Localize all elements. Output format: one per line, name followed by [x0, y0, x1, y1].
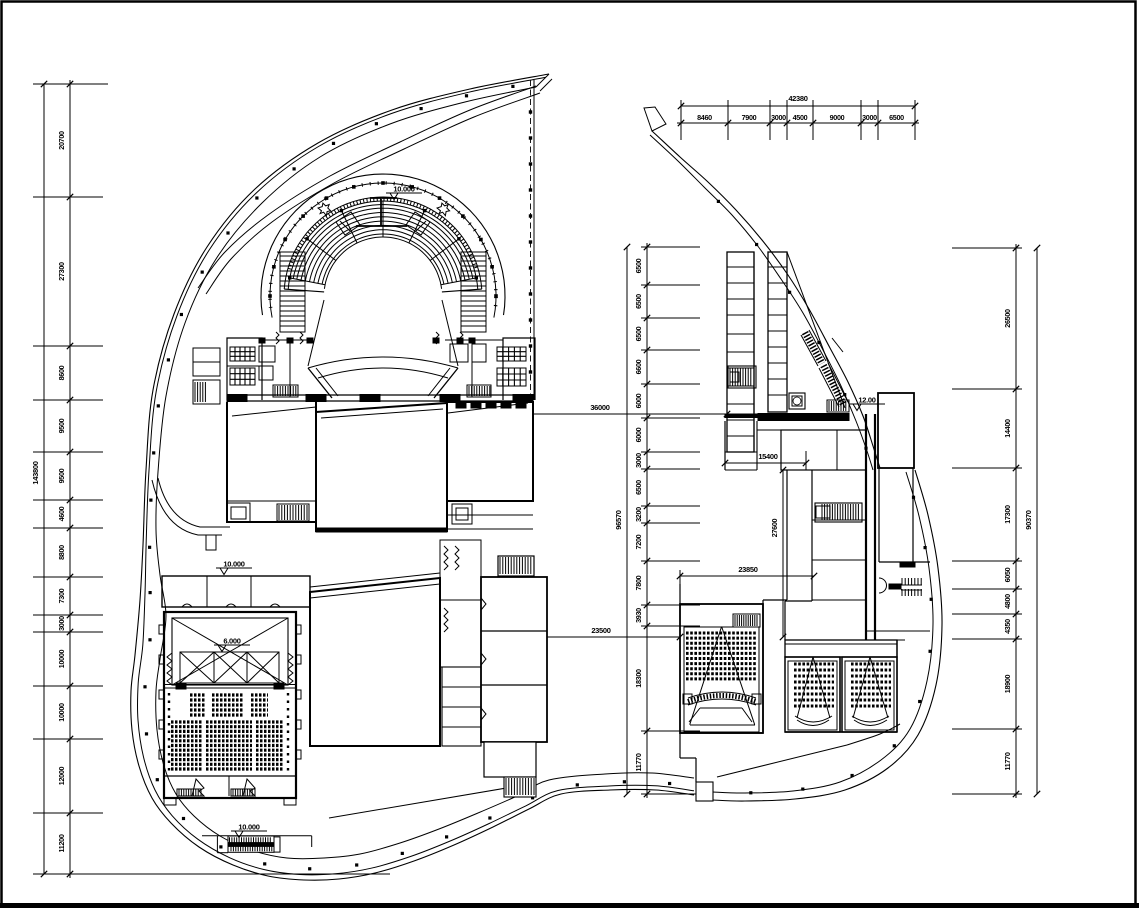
svg-text:143800: 143800	[31, 461, 40, 484]
svg-text:20700: 20700	[57, 131, 66, 150]
svg-text:11770: 11770	[634, 753, 643, 771]
svg-text:3000: 3000	[771, 113, 786, 122]
svg-text:17300: 17300	[1003, 505, 1012, 524]
svg-text:6500: 6500	[634, 258, 643, 273]
svg-text:27600: 27600	[770, 518, 779, 537]
svg-text:6500: 6500	[634, 294, 643, 309]
svg-text:8600: 8600	[57, 365, 66, 380]
svg-text:4500: 4500	[793, 113, 808, 122]
svg-text:90370: 90370	[1024, 510, 1033, 529]
svg-text:9000: 9000	[830, 113, 845, 122]
svg-text:9500: 9500	[57, 468, 66, 483]
svg-text:6050: 6050	[1003, 567, 1012, 582]
svg-text:8460: 8460	[697, 113, 712, 122]
svg-text:11770: 11770	[1003, 752, 1012, 770]
svg-text:3000: 3000	[634, 453, 643, 468]
svg-text:3200: 3200	[634, 507, 643, 522]
svg-text:14400: 14400	[1003, 419, 1012, 438]
svg-text:15400: 15400	[758, 452, 777, 461]
svg-text:10000: 10000	[57, 649, 66, 668]
svg-text:9500: 9500	[57, 418, 66, 433]
svg-text:3930: 3930	[634, 608, 643, 623]
svg-text:6500: 6500	[634, 326, 643, 341]
svg-text:3000: 3000	[862, 113, 877, 122]
svg-text:12.00: 12.00	[858, 396, 875, 405]
svg-text:42380: 42380	[788, 94, 807, 103]
svg-text:6.000: 6.000	[223, 637, 240, 646]
svg-text:7900: 7900	[742, 113, 757, 122]
svg-text:96570: 96570	[614, 510, 623, 529]
svg-text:10.000: 10.000	[393, 185, 414, 194]
svg-text:4800: 4800	[1003, 594, 1012, 609]
svg-text:4600: 4600	[57, 506, 66, 521]
svg-text:6000: 6000	[634, 393, 643, 408]
svg-text:10000: 10000	[57, 703, 66, 722]
svg-text:7300: 7300	[57, 588, 66, 603]
svg-text:6500: 6500	[889, 113, 904, 122]
svg-text:10.000: 10.000	[223, 560, 244, 569]
svg-text:27300: 27300	[57, 262, 66, 281]
svg-text:7800: 7800	[634, 575, 643, 590]
svg-text:10.000: 10.000	[238, 823, 259, 832]
svg-text:3000: 3000	[57, 616, 66, 631]
svg-text:12000: 12000	[57, 766, 66, 785]
svg-text:6000: 6000	[634, 427, 643, 442]
svg-text:23850: 23850	[738, 565, 757, 574]
svg-text:18300: 18300	[634, 669, 643, 688]
svg-text:26500: 26500	[1003, 309, 1012, 328]
svg-text:6500: 6500	[634, 480, 643, 495]
svg-text:4350: 4350	[1003, 619, 1012, 634]
svg-text:8800: 8800	[57, 545, 66, 560]
svg-text:18900: 18900	[1003, 674, 1012, 693]
svg-text:36000: 36000	[590, 403, 609, 412]
svg-text:23500: 23500	[591, 626, 610, 635]
svg-text:7200: 7200	[634, 534, 643, 549]
svg-text:11200: 11200	[57, 834, 66, 852]
svg-text:6600: 6600	[634, 359, 643, 374]
